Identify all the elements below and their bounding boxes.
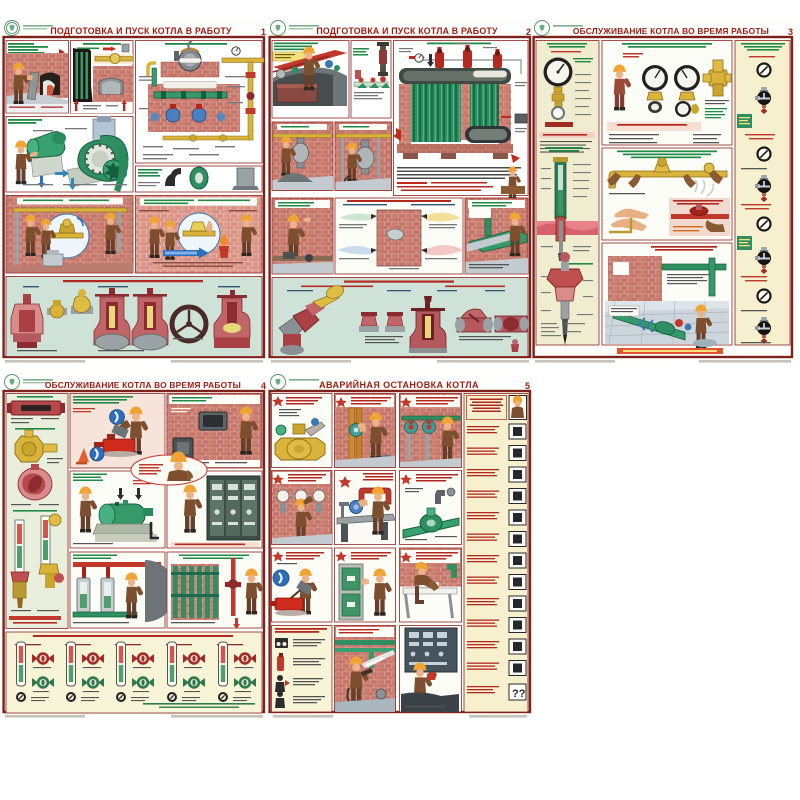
svg-text:ОБСЛУЖИВАНИЕ КОТЛА ВО ВРЕМЯ РА: ОБСЛУЖИВАНИЕ КОТЛА ВО ВРЕМЯ РАБОТЫ bbox=[45, 380, 241, 390]
svg-text:ПОДГОТОВКА И ПУСК КОТЛА В РАБО: ПОДГОТОВКА И ПУСК КОТЛА В РАБОТУ bbox=[50, 26, 232, 36]
svg-text:2: 2 bbox=[526, 27, 531, 37]
svg-text:ОБСЛУЖИВАНИЕ КОТЛА ВО ВРЕМЯ РА: ОБСЛУЖИВАНИЕ КОТЛА ВО ВРЕМЯ РАБОТЫ bbox=[573, 26, 769, 36]
svg-text:1: 1 bbox=[261, 27, 266, 37]
svg-text:3: 3 bbox=[788, 27, 793, 37]
svg-text:??: ?? bbox=[512, 688, 526, 700]
svg-text:5: 5 bbox=[525, 381, 530, 391]
svg-text:АВАРИЙНАЯ ОСТАНОВКА КОТЛА: АВАРИЙНАЯ ОСТАНОВКА КОТЛА bbox=[319, 379, 479, 390]
svg-text:ПОДГОТОВКА И ПУСК КОТЛА В РАБО: ПОДГОТОВКА И ПУСК КОТЛА В РАБОТУ bbox=[316, 26, 498, 36]
svg-text:4: 4 bbox=[261, 381, 266, 391]
